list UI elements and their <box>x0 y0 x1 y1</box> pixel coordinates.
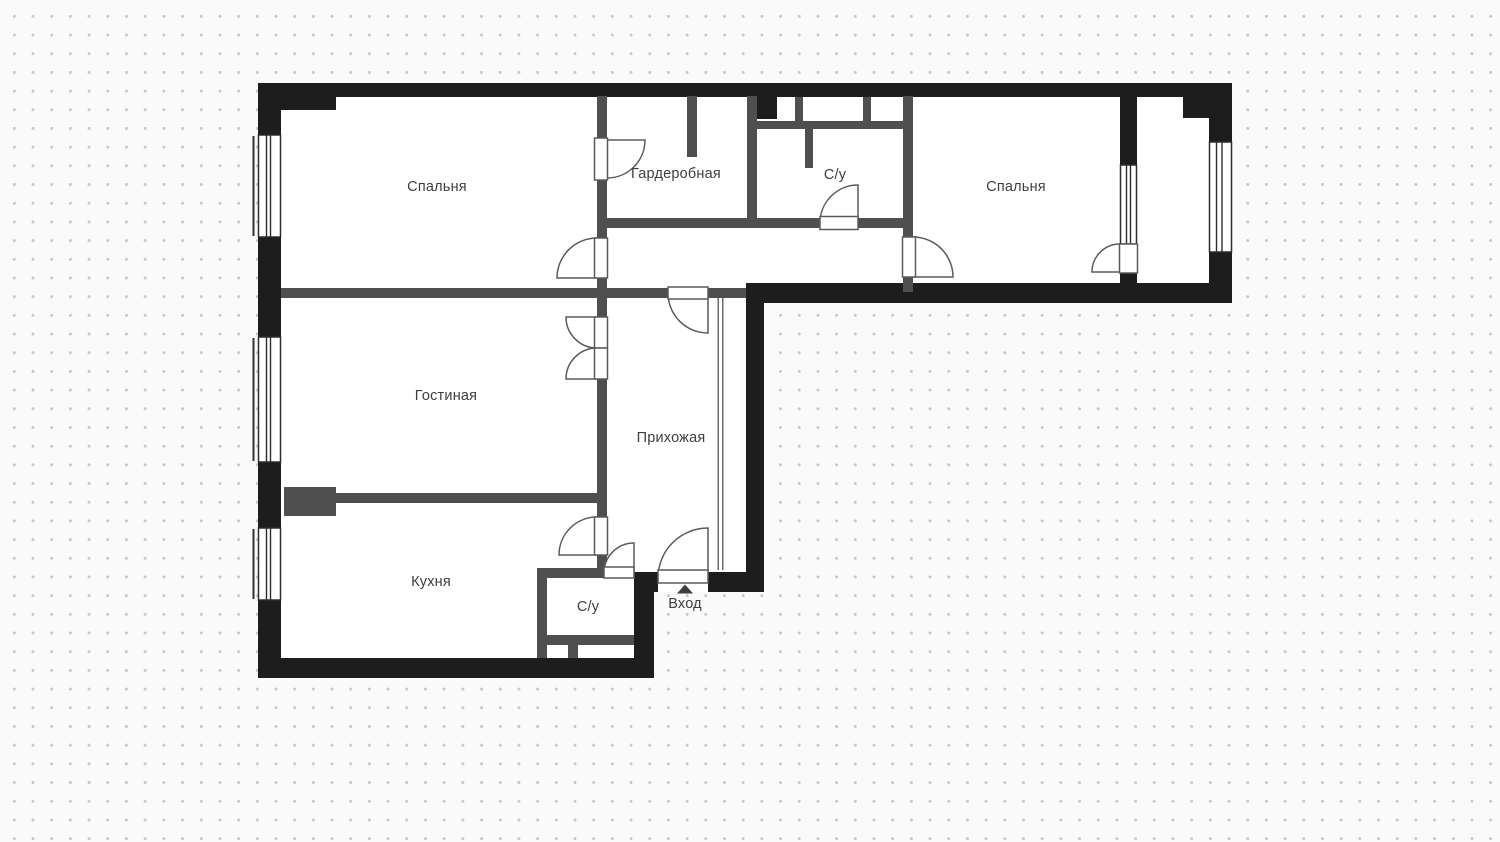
floorplan-canvas: Спальня Гардеробная С/у Спальня Гостиная… <box>0 0 1500 842</box>
window-balcony-outer <box>1210 142 1232 252</box>
vent-shaft-block <box>284 487 336 516</box>
room-label-living-room: Гостиная <box>415 388 477 404</box>
room-label-bedroom-2: Спальня <box>986 179 1046 195</box>
room-label-bedroom-1: Спальня <box>407 179 467 195</box>
room-label-bathroom-bottom: С/у <box>577 599 599 615</box>
entrance-label: Вход <box>668 596 702 612</box>
floorplan-drawing <box>0 0 1500 842</box>
window-living-room <box>253 337 281 462</box>
room-label-hallway: Прихожая <box>637 430 706 446</box>
window-kitchen <box>253 528 281 600</box>
window-balcony-inner <box>1121 165 1137 244</box>
room-label-bathroom-top: С/у <box>824 167 846 183</box>
room-label-kitchen: Кухня <box>411 574 451 590</box>
room-label-wardrobe: Гардеробная <box>631 166 721 182</box>
window-bedroom-1 <box>253 135 281 237</box>
entrance-triangle-up-icon <box>677 585 693 594</box>
